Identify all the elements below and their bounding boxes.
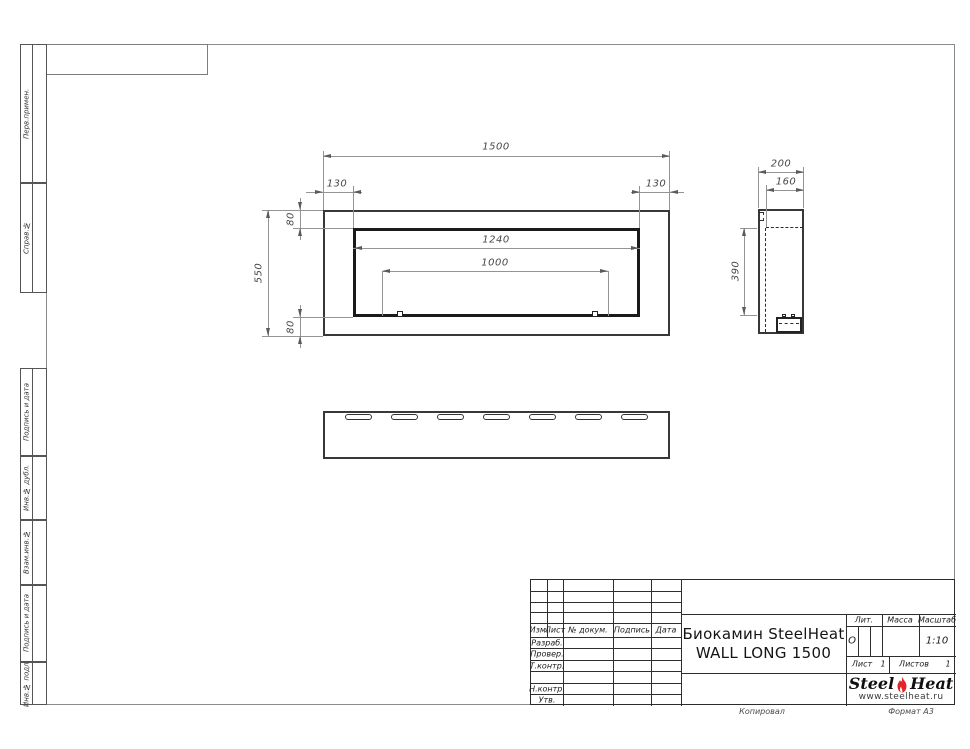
col-date: Дата [656, 626, 677, 635]
arrowhead [742, 307, 746, 315]
title-block-line [846, 656, 956, 657]
arrowhead [632, 190, 640, 194]
title-block-line [531, 602, 681, 603]
arrowhead [298, 228, 302, 236]
logo-website: www.steelheat.ru [859, 692, 944, 702]
designation-box [46, 44, 208, 75]
arrowhead [353, 190, 361, 194]
logo-wordmark: Steel Heat [849, 676, 953, 692]
dim-burner-width: 1000 [481, 258, 508, 269]
arrowhead [600, 269, 608, 273]
arrowhead [796, 170, 804, 174]
arrowhead [662, 154, 670, 158]
dim-inner-height: 390 [731, 261, 742, 282]
title-block-line [889, 656, 890, 673]
stamp-label: Справ.№ [21, 184, 32, 292]
arrowhead [266, 210, 270, 218]
scale-label: Масштаб [918, 616, 956, 625]
arrowhead [298, 202, 302, 210]
dim-right-offset: 130 [646, 179, 667, 190]
vent-slot [437, 414, 464, 420]
arrowhead [758, 170, 766, 174]
lit-label: Лит. [855, 616, 873, 625]
stamp-label: Взам.инв.№ [21, 521, 32, 584]
margin-stamp: Подпись и дата [20, 368, 47, 456]
arrowhead [354, 246, 362, 250]
col-list: Лист [545, 626, 565, 635]
row-tcontrol: Т.контр. [530, 662, 565, 671]
arrowhead [766, 188, 774, 192]
bracket-hidden-detail [759, 212, 764, 221]
col-signature: Подпись [614, 626, 650, 635]
extension-line [740, 315, 757, 316]
logo-text-heat: Heat [910, 676, 953, 692]
steelheat-logo: Steel Heat www.steelheat.ru [846, 673, 956, 704]
document-name-line2: WALL LONG 1500 [696, 644, 831, 663]
title-block-line [613, 580, 614, 706]
stamp-divider [32, 663, 33, 704]
dimension-line [744, 228, 745, 315]
arrowhead [631, 246, 639, 250]
burner-notch [782, 314, 786, 317]
arrowhead [382, 269, 390, 273]
extension-line [382, 271, 383, 316]
arrowhead [796, 188, 804, 192]
vent-slot [529, 414, 556, 420]
document-name-line1: Биокамин SteelHeat [682, 625, 844, 644]
dimension-line [353, 248, 640, 249]
vent-slot [575, 414, 602, 420]
vent-slot [621, 414, 648, 420]
burner-notch [791, 314, 795, 317]
title-block-line [531, 591, 681, 592]
extension-line [323, 151, 324, 210]
arrowhead [266, 328, 270, 336]
margin-stamp: Инв.№ подл. [20, 662, 47, 705]
vent-slot [391, 414, 418, 420]
dim-inner-depth: 160 [776, 177, 797, 188]
stamp-label: Инв.№ подл. [21, 663, 32, 704]
stamp-divider [32, 457, 33, 519]
stamp-divider [32, 45, 33, 182]
stamp-divider [32, 586, 33, 661]
dimension-line [382, 271, 608, 272]
dim-depth: 200 [771, 159, 792, 170]
title-block-line [846, 626, 956, 627]
extension-line [608, 271, 609, 316]
row-checked: Провер. [530, 650, 563, 659]
format-label: Формат А3 [888, 707, 934, 716]
title-block-line [531, 612, 681, 613]
dimension-line [268, 210, 269, 336]
margin-stamp: Перв.примен. [20, 44, 47, 183]
dim-overall-width: 1500 [482, 142, 509, 153]
extension-line [669, 151, 670, 210]
dim-opening-width: 1240 [482, 235, 509, 246]
margin-stamp: Инв.№ дубл. [20, 456, 47, 520]
hidden-line [779, 323, 799, 324]
sheets-label: Листов [899, 660, 929, 669]
extension-line [262, 210, 323, 211]
stamp-label: Инв.№ дубл. [21, 457, 32, 519]
dim-bottom-offset: 80 [286, 320, 297, 334]
margin-stamp: Подпись и дата [20, 585, 47, 662]
title-block-line [531, 671, 681, 672]
burner-tab [397, 311, 403, 317]
arrowhead [323, 154, 331, 158]
margin-stamp: Взам.инв.№ [20, 520, 47, 585]
scale-value: 1:10 [926, 636, 948, 647]
stamp-label: Подпись и дата [21, 586, 32, 661]
document-name: Биокамин SteelHeat WALL LONG 1500 [681, 614, 846, 673]
arrowhead [670, 190, 678, 194]
arrowhead [742, 228, 746, 236]
dimension-line [323, 156, 670, 157]
dim-left-offset: 130 [327, 179, 348, 190]
hidden-line [765, 228, 766, 332]
arrowhead [298, 309, 302, 317]
drawing-sheet: Перв.примен. Справ.№ Подпись и дата Инв.… [0, 0, 970, 749]
arrowhead [298, 336, 302, 344]
copied-by-label: Копировал [739, 707, 785, 716]
hidden-line [766, 227, 803, 228]
burner-tab [592, 311, 598, 317]
title-block-line [870, 626, 871, 656]
title-block: Изм. Лист № докум. Подпись Дата Разраб. … [530, 579, 955, 705]
title-block-line [882, 614, 883, 656]
dim-top-offset: 80 [286, 212, 297, 226]
margin-stamp: Справ.№ [20, 183, 47, 293]
vent-slot [345, 414, 372, 420]
stamp-label: Перв.примен. [21, 45, 32, 182]
col-docnum: № докум. [568, 626, 607, 635]
row-approved: Утв. [539, 696, 556, 705]
vent-slot [483, 414, 510, 420]
row-developed: Разраб. [531, 639, 562, 648]
stamp-divider [32, 521, 33, 584]
mass-label: Масса [887, 616, 913, 625]
sheet-value: 1 [880, 660, 885, 669]
title-block-line [531, 623, 681, 624]
sheet-label: Лист [852, 660, 872, 669]
stamp-divider [32, 184, 33, 292]
title-block-line [651, 580, 652, 706]
sheets-value: 1 [945, 660, 950, 669]
dim-overall-height: 550 [254, 263, 265, 284]
extension-line [293, 317, 353, 318]
lit-value: О [848, 636, 856, 647]
extension-line [293, 228, 353, 229]
extension-line [262, 336, 323, 337]
logo-text-steel: Steel [849, 676, 894, 692]
burner-block [776, 317, 802, 333]
arrowhead [315, 190, 323, 194]
row-ncontrol: Н.контр. [529, 685, 565, 694]
stamp-divider [32, 369, 33, 455]
stamp-label: Подпись и дата [21, 369, 32, 455]
title-block-line [858, 626, 859, 656]
